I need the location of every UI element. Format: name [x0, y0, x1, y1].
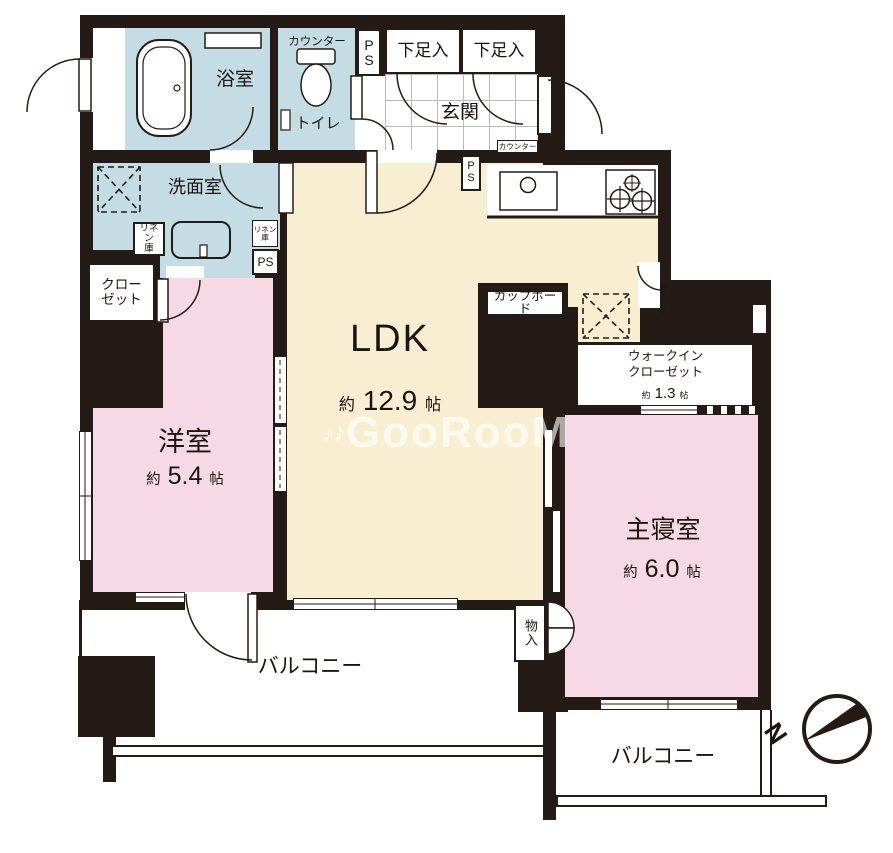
window-bedroom-balcony — [600, 699, 738, 710]
balcony-pillar — [78, 656, 155, 737]
cupboard: カップボード — [486, 290, 564, 316]
watermark: ♪♪GooRooM — [322, 408, 570, 458]
hatch-wic-bedroom — [698, 405, 758, 415]
service-door-arc — [27, 59, 80, 112]
pipe-space-mid: PS — [252, 249, 279, 275]
shoe-cabinet-label: 下足入 — [474, 42, 525, 60]
size-value: 5.4 — [168, 462, 203, 490]
balcony-right-label: バルコニー — [598, 740, 728, 770]
slider-western-ldk-2 — [274, 426, 287, 492]
wic-line2: クローゼット — [588, 364, 743, 380]
floor-plan: P S 下足入 下足入 カウンター リネン 庫 リネン 庫 PS クロー ゼット… — [0, 0, 893, 853]
cupboard-label: カップボード — [488, 290, 562, 316]
genkan-counter: カウンター — [497, 140, 538, 153]
balcony-pillar-stub — [103, 737, 116, 782]
service-door-gap — [80, 58, 93, 112]
bathroom-label: 浴室 — [190, 64, 280, 91]
watermark-icon: ♪♪ — [322, 417, 344, 447]
pipe-space-top: P S — [357, 29, 381, 76]
storage-monoire: 物入 — [514, 604, 546, 662]
fridge-space-floor — [578, 290, 640, 342]
western-room-label: 洋室 — [125, 420, 245, 459]
size-approx: 約 — [146, 472, 161, 488]
size-value: 6.0 — [645, 555, 680, 583]
balcony-left-railing — [113, 745, 543, 757]
balcony-right-railing — [760, 710, 772, 797]
toilet-label: トイレ — [288, 112, 348, 133]
linen-label: リネン — [135, 224, 163, 244]
washroom-label: 洗面室 — [135, 173, 255, 199]
shoe-cabinet-2: 下足入 — [461, 28, 537, 74]
wic-label: ウォークイン クローゼット — [588, 348, 743, 381]
storage-label: 物入 — [523, 619, 537, 647]
size-approx: 約 — [642, 390, 651, 400]
size-unit: 帖 — [686, 565, 701, 581]
watermark-text: GooRooM — [346, 408, 570, 457]
ps-label: PS — [257, 256, 273, 269]
toilet-corridor-gap — [355, 76, 385, 150]
wic-size: 約 1.3 帖 — [595, 385, 735, 402]
ldk-label: LDK — [310, 318, 470, 361]
ps-label: S — [364, 53, 373, 68]
western-room-floor-upper — [163, 278, 273, 408]
balcony-left-label: バルコニー — [245, 650, 375, 680]
balcony-right-ledge — [556, 795, 827, 807]
slider-ldk-bedroom-2 — [552, 510, 561, 593]
window-western-bottom — [135, 592, 185, 603]
shoe-cabinet-label: 下足入 — [398, 42, 449, 60]
ps-label: P — [364, 38, 373, 53]
bedroom-label: 主寝室 — [598, 510, 728, 546]
window-ldk-balcony — [293, 598, 458, 610]
window-wic-bedroom — [640, 405, 698, 415]
bath-door-gap — [210, 150, 253, 163]
wic-niche — [752, 304, 767, 334]
closet-label: クロー — [101, 278, 142, 292]
wall-balcony-divider — [543, 710, 556, 820]
balcony-left-edge — [79, 600, 82, 656]
linen-storage-1: リネン 庫 — [133, 222, 165, 256]
size-approx: 約 — [623, 565, 638, 581]
western-balcony-door-gap — [185, 592, 251, 610]
size-value: 1.3 — [655, 385, 676, 402]
hallway-floor — [93, 28, 125, 150]
closet-label: ゼット — [101, 293, 142, 307]
ps-label: S — [467, 173, 474, 185]
size-unit: 帖 — [209, 472, 224, 488]
pantry-label: パントリー — [656, 284, 666, 317]
genkan-ldk-door-gap — [377, 150, 437, 163]
shoe-cabinet-1: 下足入 — [385, 28, 461, 74]
compass-icon — [804, 696, 870, 762]
genkan-label: 玄関 — [420, 97, 500, 124]
linen-label: 庫 — [144, 244, 154, 254]
wic-line1: ウォークイン — [588, 348, 743, 364]
bedroom-size: 約 6.0 帖 — [592, 555, 732, 584]
pipe-space-kitchen: P S — [461, 155, 481, 191]
genkan-counter-label: カウンター — [499, 143, 537, 151]
western-room-size: 約 5.4 帖 — [115, 462, 255, 491]
size-unit: 帖 — [680, 390, 689, 400]
slider-western-ldk-1 — [274, 356, 287, 424]
window-western-left — [79, 431, 92, 561]
toilet-counter-label: カウンター — [280, 33, 354, 49]
closet: クロー ゼット — [88, 263, 155, 322]
linen-label: 庫 — [261, 234, 269, 242]
linen-storage-2: リネン 庫 — [252, 220, 278, 247]
western-door-gap — [166, 266, 204, 278]
